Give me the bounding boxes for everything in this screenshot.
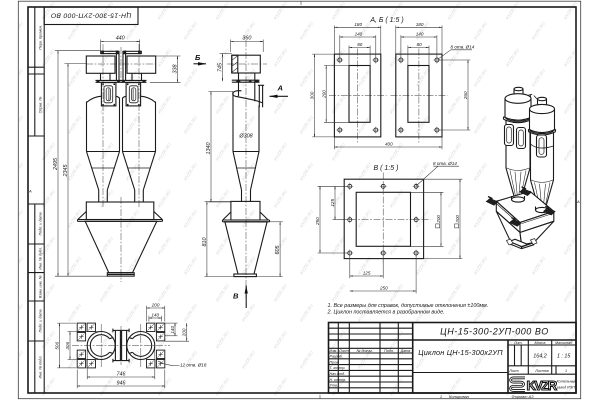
svg-text:1. Все размеры для справок, д: 1. Все размеры для справок, допустимые о…	[328, 303, 489, 309]
svg-text:140: 140	[416, 32, 424, 37]
svg-text:Котельный: Котельный	[557, 380, 577, 384]
svg-text:745: 745	[218, 62, 224, 72]
svg-text:В: В	[233, 292, 239, 301]
svg-text:Инв. № дубл.: Инв. № дубл.	[39, 247, 43, 270]
svg-text:Лист: Лист	[338, 349, 349, 353]
svg-text:А: А	[28, 189, 32, 194]
svg-text:А, Б ( 1:5 ): А, Б ( 1:5 )	[369, 17, 403, 24]
svg-text:Копировал: Копировал	[449, 394, 470, 399]
svg-text:Взам. инв. №: Взам. инв. №	[39, 275, 43, 298]
svg-text:125: 125	[363, 270, 371, 275]
svg-text:Изм.: Изм.	[329, 349, 337, 353]
svg-text:440: 440	[116, 36, 125, 42]
svg-text:Листов: Листов	[534, 369, 549, 373]
svg-text:140: 140	[170, 326, 175, 334]
svg-text:Подп. и дата: Подп. и дата	[39, 212, 43, 235]
svg-text:Ø308: Ø308	[238, 134, 252, 140]
svg-text:180: 180	[354, 22, 362, 27]
svg-text:1: 1	[440, 394, 442, 399]
svg-text:Справ. №: Справ. №	[39, 97, 43, 114]
svg-text:Пров.: Пров.	[330, 360, 340, 364]
svg-text:1 : 15: 1 : 15	[557, 354, 571, 360]
svg-text:№ докум.: № докум.	[356, 349, 372, 353]
svg-text:306: 306	[65, 342, 70, 350]
svg-text:80: 80	[357, 42, 363, 47]
svg-text:250: 250	[379, 285, 388, 290]
svg-text:Масштаб: Масштаб	[555, 341, 573, 345]
svg-text:2345: 2345	[63, 164, 69, 178]
svg-text:Нач.отд.: Нач.отд.	[330, 372, 346, 376]
svg-text:Лит.: Лит.	[513, 341, 523, 345]
svg-text:200: 200	[182, 328, 187, 337]
svg-text:200: 200	[436, 215, 441, 224]
svg-text:2495: 2495	[53, 157, 59, 171]
svg-text:Лист: Лист	[508, 369, 519, 373]
svg-text:KVZR: KVZR	[527, 378, 558, 393]
svg-text:338: 338	[172, 65, 178, 74]
svg-text:605: 605	[275, 245, 281, 255]
svg-text:946: 946	[117, 380, 126, 386]
svg-text:8 отв. Ø14: 8 отв. Ø14	[451, 45, 475, 50]
svg-text:140: 140	[355, 32, 363, 37]
svg-text:260: 260	[463, 91, 468, 100]
svg-text:200: 200	[321, 90, 326, 99]
svg-text:12 отв. Ø18: 12 отв. Ø18	[180, 363, 207, 368]
svg-text:Н. контр.: Н. контр.	[330, 378, 347, 382]
svg-text:Масса: Масса	[535, 341, 546, 345]
svg-text:Инв. № подл.: Инв. № подл.	[39, 356, 43, 379]
svg-text:Формат А3: Формат А3	[512, 394, 535, 399]
svg-text:В ( 1:5 ): В ( 1:5 )	[374, 165, 399, 172]
svg-text:164,2: 164,2	[533, 354, 547, 360]
svg-text:завод РЭП: завод РЭП	[556, 386, 576, 390]
svg-text:Утв.: Утв.	[330, 384, 338, 388]
svg-text:810: 810	[202, 238, 208, 247]
svg-text:200: 200	[151, 302, 160, 307]
svg-text:400: 400	[385, 141, 393, 146]
svg-text:А: А	[277, 84, 283, 93]
svg-text:8 отв. Ø14: 8 отв. Ø14	[433, 161, 457, 166]
svg-text:Перв. примен.: Перв. примен.	[39, 25, 43, 50]
svg-text:Б: Б	[195, 53, 201, 62]
svg-text:250: 250	[315, 217, 320, 226]
svg-text:Разраб.: Разраб.	[330, 355, 343, 359]
svg-text:300: 300	[455, 215, 460, 223]
svg-text:80: 80	[417, 42, 423, 47]
svg-text:140: 140	[151, 312, 159, 317]
svg-text:Подп.: Подп.	[384, 349, 394, 353]
svg-text:180: 180	[416, 22, 424, 27]
svg-text:360: 360	[242, 36, 251, 42]
svg-text:А: А	[576, 199, 580, 204]
svg-text:Т. контр.: Т. контр.	[330, 366, 346, 370]
svg-text:746: 746	[117, 371, 126, 377]
svg-text:ЦН-15-300-2УП-000 ВО: ЦН-15-300-2УП-000 ВО	[50, 12, 131, 19]
svg-text:2. Циклон поставляется в разо: 2. Циклон поставляется в разобранном вид…	[327, 309, 445, 315]
svg-text:Циклон ЦН-15-300х2УП: Циклон ЦН-15-300х2УП	[418, 348, 503, 357]
svg-text:506: 506	[55, 342, 60, 350]
svg-text:300: 300	[310, 91, 315, 99]
svg-text:Дата: Дата	[400, 349, 411, 353]
svg-text:Подп. и дата: Подп. и дата	[39, 309, 43, 332]
svg-text:1: 1	[565, 369, 567, 373]
svg-text:1340: 1340	[206, 143, 212, 155]
svg-text:125: 125	[330, 199, 335, 207]
svg-text:ЦН-15-300-2УП-000 ВО: ЦН-15-300-2УП-000 ВО	[440, 327, 549, 337]
